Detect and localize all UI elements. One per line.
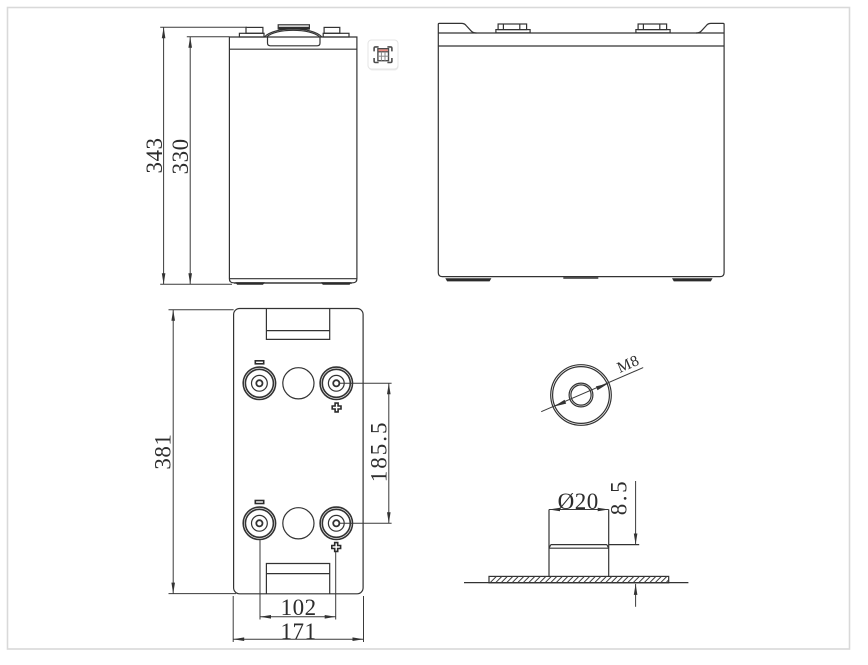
svg-text:343: 343 xyxy=(142,138,167,174)
svg-text:8.5: 8.5 xyxy=(606,479,631,516)
svg-text:381: 381 xyxy=(151,434,176,470)
svg-text:Ø20: Ø20 xyxy=(558,489,599,514)
svg-text:330: 330 xyxy=(168,138,193,174)
svg-text:185.5: 185.5 xyxy=(366,421,391,483)
svg-text:171: 171 xyxy=(281,619,317,644)
svg-text:102: 102 xyxy=(281,595,317,620)
